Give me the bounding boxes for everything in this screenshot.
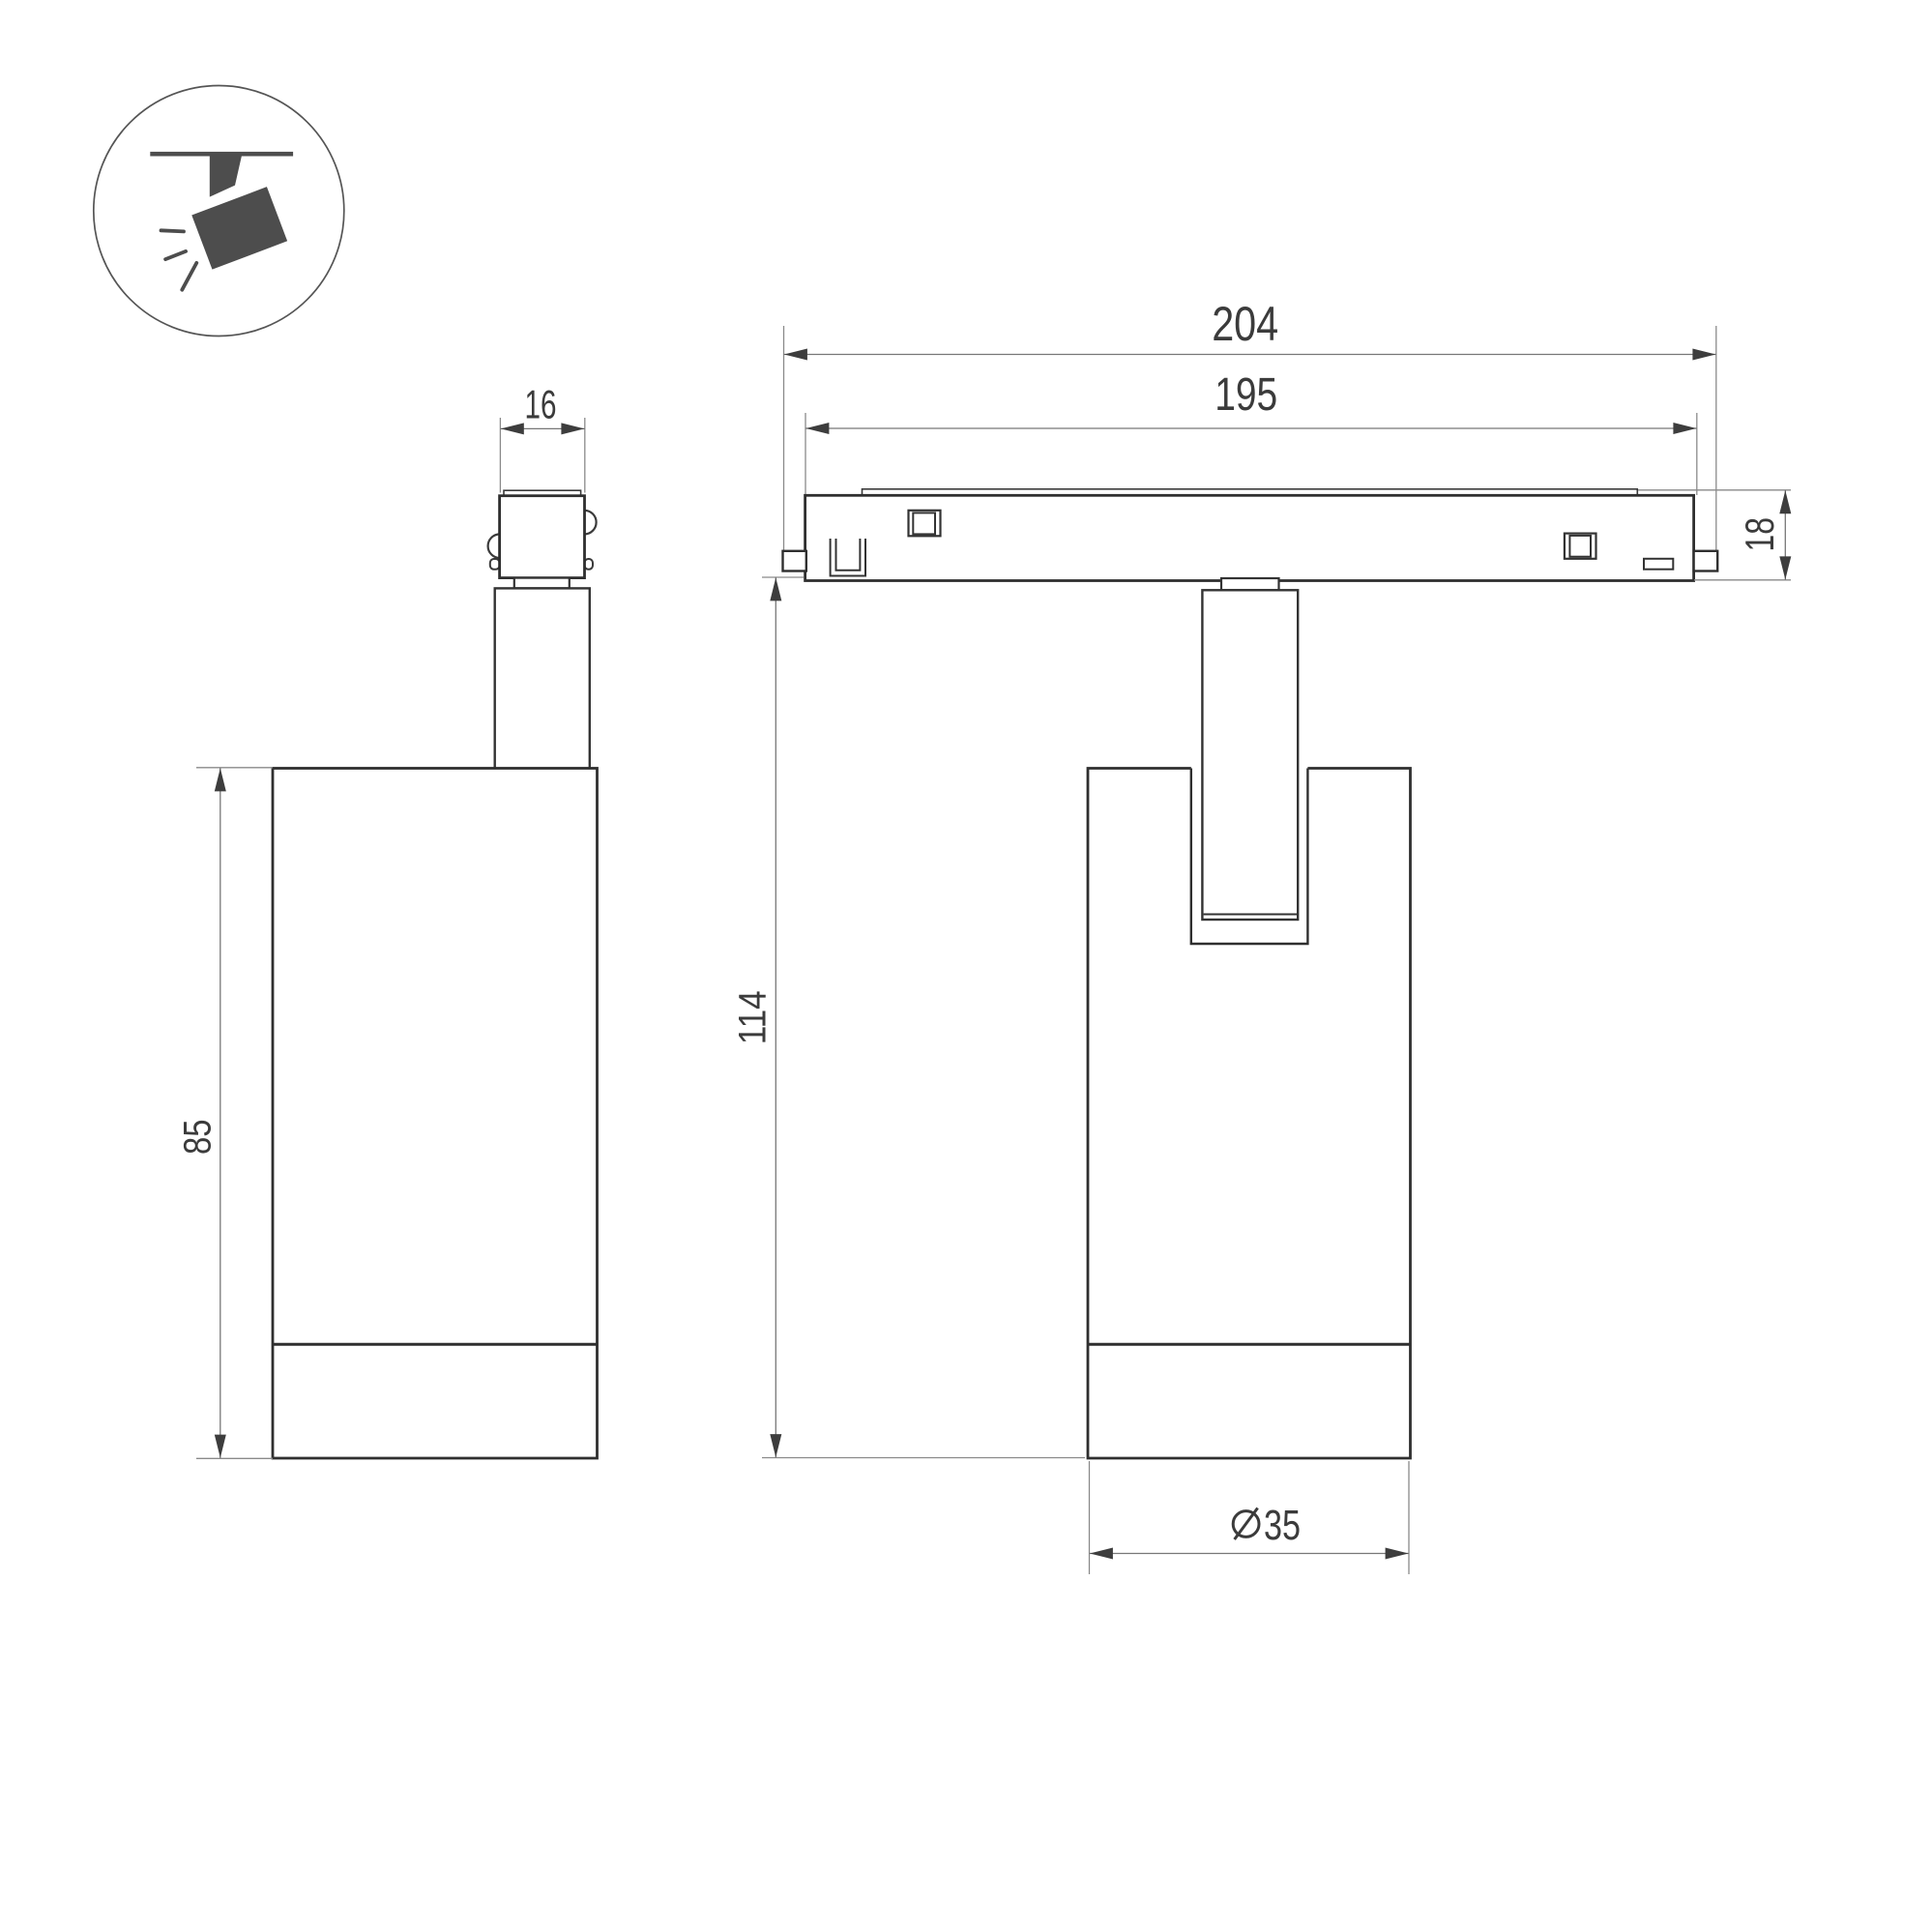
svg-text:18: 18 xyxy=(1737,517,1782,552)
svg-text:16: 16 xyxy=(525,382,557,427)
svg-text:204: 204 xyxy=(1212,297,1278,351)
svg-text:35: 35 xyxy=(1264,1502,1301,1549)
svg-text:85: 85 xyxy=(176,1120,219,1156)
svg-text:195: 195 xyxy=(1215,369,1277,421)
svg-text:114: 114 xyxy=(732,990,775,1044)
